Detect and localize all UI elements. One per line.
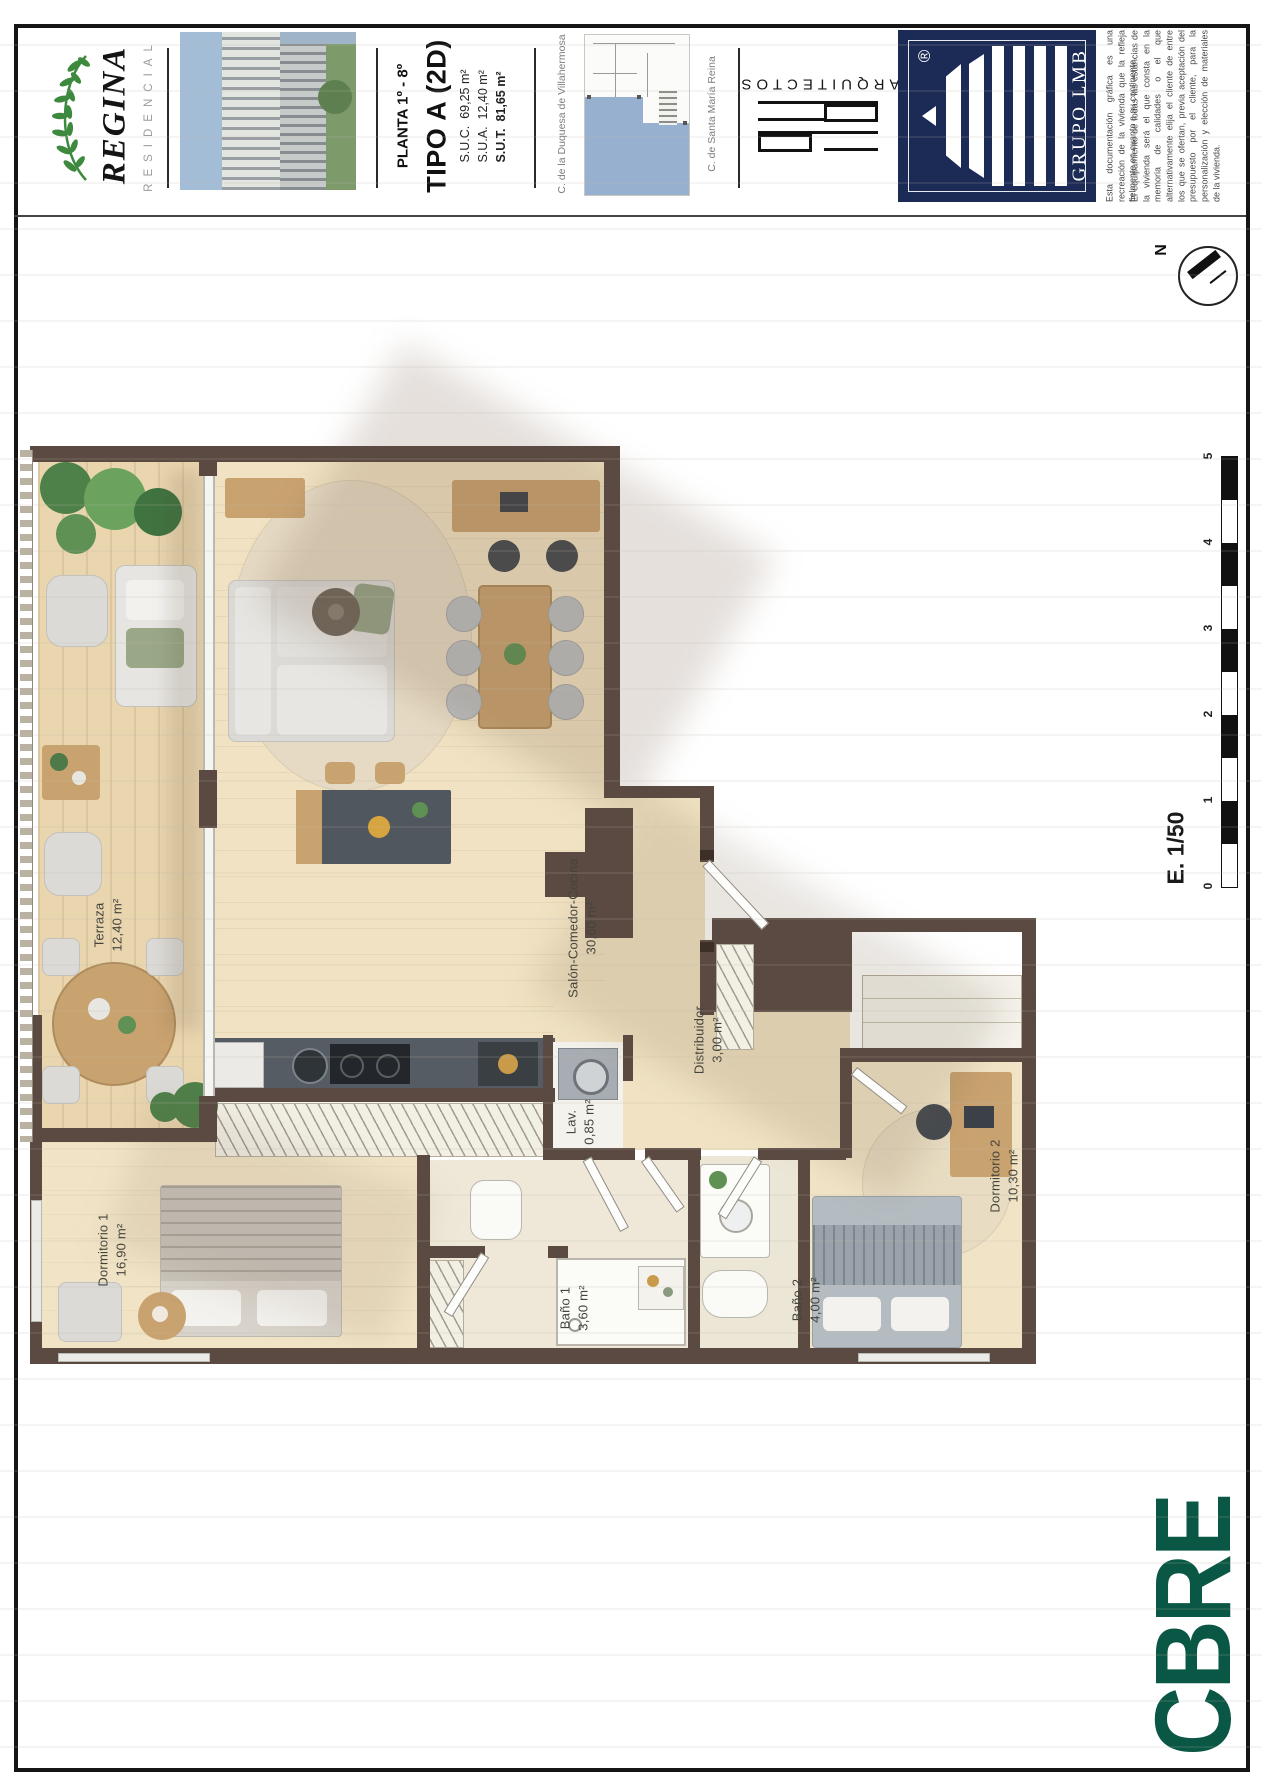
photo-tree-blob [318,80,352,114]
burner [376,1054,400,1078]
island-stool [375,762,405,784]
scale-tick: 3 [1201,625,1215,632]
room-label-distribuidor: Distribuidor 3,00 m² [690,1006,725,1074]
bench-deco [663,1287,673,1297]
room-name: Salón-Comedor-Cocina [564,858,582,998]
sideboard [225,478,305,518]
architects-label: ARQUITECTOS [736,76,899,93]
area-label: S.U.A. [476,126,490,162]
key-plan-column [683,121,687,125]
area-row-sua: S.U.A. 12,40 m² [474,69,492,162]
room-area: 4,00 m² [806,1277,824,1322]
photo-sky-strip [280,32,356,44]
key-plan-stair [659,91,677,125]
room-name: Dormitorio 2 [986,1139,1004,1212]
bedroom2-bed [812,1196,962,1348]
island-stool [325,762,355,784]
wall-top [30,446,620,462]
room-area: 12,40 m² [108,899,126,952]
key-plan-line [593,43,675,44]
disclaimer-paragraph-2: El equipamiento de todas las estancias d… [1129,30,1223,202]
bench-deco [647,1275,659,1287]
fruit-bowl [368,816,390,838]
architects-logo-box [824,104,878,122]
washer-door [573,1059,609,1095]
wall-living-right [604,446,620,798]
room-name: Baño 1 [556,1285,574,1330]
bed-blanket [813,1225,961,1285]
plan-sheet: REGINA RESIDENCIAL PLANTA 1º - 8º TIPO A… [0,0,1262,1785]
bedroom1-side-table [138,1292,186,1340]
terrace-plant [56,514,96,554]
cooktop [330,1044,410,1084]
grupo-name: GRUPO LMB [1069,49,1091,182]
room-area: 30,60 m² [582,858,600,998]
grupo-lmb-logo: ® [898,30,1096,202]
room-label-salon: Salón-Comedor-Cocina 30,60 m² [564,858,599,998]
wall-under-closet [850,1048,1022,1062]
street-label-right: C. de Santa María Reina [706,56,718,172]
header-divider [14,215,1246,217]
bedroom1-armchair [58,1282,122,1342]
room-name: Distribuidor [690,1006,708,1074]
wall-kitchen-back [205,1088,555,1102]
terrace-chair [42,1066,80,1104]
terrace-shadow [168,470,202,1030]
vanity-plant [709,1171,727,1189]
area-row-suc: S.U.C. 69,25 m² [456,69,474,162]
grupo-mark-bar [1013,46,1025,186]
cbre-logo: CBRE [1132,1496,1255,1756]
bed-pillow [823,1297,881,1331]
grupo-mark-stroke [969,54,984,178]
wall-laundry-left [543,1035,553,1157]
grupo-mark-bar [1034,46,1046,186]
room-label-bano2: Baño 2 4,00 m² [788,1277,823,1322]
brand-subtitle: RESIDENCIAL [143,38,155,192]
room-name: Dormitorio 1 [94,1213,112,1286]
grupo-mark-stroke [946,64,961,168]
key-plan-line [615,43,616,97]
burner [340,1054,364,1078]
plate-areas: S.U.C. 69,25 m² S.U.A. 12,40 m² S.U.T. 8… [456,69,510,162]
table-deco [72,771,86,785]
architects-logo-bar [824,148,878,151]
photo-building-1 [222,32,280,190]
wall-terrace-bottom [30,1128,206,1142]
area-value: 81,65 m² [494,72,508,122]
terrace-railing [20,450,33,1142]
room-area: 3,00 m² [708,1006,726,1074]
brand-name: REGINA [97,46,134,185]
sofa-cushion [277,665,387,735]
wall-bedroom2-left [840,1048,852,1158]
door-jamb [700,942,714,952]
street-label-left: C. de la Duquesa de Villahermosa [556,34,568,193]
scale-tick: 5 [1201,453,1215,460]
area-value: 12,40 m² [476,70,490,119]
scale-tick: 1 [1201,797,1215,804]
compass-north-label: N [1153,244,1171,256]
key-plan-column [637,95,641,99]
architects-logo-box [758,134,812,152]
glazing-mullion [199,1096,217,1142]
room-name: Terraza [90,899,108,952]
room-area: 3,60 m² [574,1285,592,1330]
bathroom1-toilet [470,1180,522,1240]
room-area: 16,90 m² [112,1213,130,1286]
scale-label: E. 1/50 [1163,812,1190,885]
room-area: 10,30 m² [1004,1139,1022,1212]
key-plan-highlight-a [585,97,643,195]
plant-pot [50,753,68,771]
key-plan-line [593,73,637,74]
area-value: 69,25 m² [458,69,472,118]
bathroom2-vanity [700,1164,770,1258]
grupo-mark-bar [1055,46,1067,186]
header-separator-4 [738,48,740,188]
window-bedroom1-left [31,1200,42,1322]
terrace-armchair [44,832,102,896]
building-photo [180,32,356,190]
table-plate [88,998,110,1020]
plate-floor: PLANTA 1º - 8º [395,64,412,168]
glazing-mullion [199,446,217,476]
terrace-armchair [46,575,108,647]
scale-bar [1221,456,1238,888]
oven-dish [498,1054,518,1074]
wall-bath1-inner-a [417,1246,485,1258]
terrace-chair [42,938,80,976]
bathroom1-bench [638,1266,684,1310]
room-name: Lav. [562,1099,580,1144]
island-plant [412,802,428,818]
door-jamb [700,850,714,860]
area-row-sut: S.U.T. 81,65 m² [492,69,510,162]
window-bedroom1-bottom [58,1353,210,1362]
desk-laptop [964,1106,994,1128]
wall-bath-divider [688,1156,700,1348]
room-label-lav: Lav. 0,85 m² [562,1099,597,1144]
room-label-terraza: Terraza 12,40 m² [90,899,125,952]
island-wood-side [296,790,322,864]
washing-machine [558,1048,618,1100]
bed-pillow [891,1297,949,1331]
wall-laundry-right [623,1035,633,1081]
key-plan-column [587,95,591,99]
terrace-console-table [42,745,100,800]
photo-sky [180,32,222,190]
kitchen-island [296,790,451,864]
grupo-mark-bar [992,46,1004,186]
fridge [214,1042,264,1088]
window-bedroom2-bottom [858,1353,990,1362]
room-label-dormitorio1: Dormitorio 1 16,90 m² [94,1213,129,1286]
glazing-mullion [199,770,217,828]
table-plant [118,1016,136,1034]
key-plan [584,34,690,196]
laurel-branch-icon [44,52,102,184]
wall-bath1-inner-b [548,1246,568,1258]
plate-type: TIPO A (2D) [422,39,453,193]
header-separator-1 [167,48,169,188]
kitchen-counter [210,1038,555,1090]
bathroom2-toilet [702,1270,768,1318]
photo-building-2 [280,42,326,190]
scale-tick: 2 [1201,711,1215,718]
header-separator-2 [376,48,378,188]
key-plan-highlight-b [643,123,689,195]
kitchen-sink [292,1048,328,1084]
scale-tick: 0 [1201,883,1215,890]
table-deco [152,1306,168,1322]
area-label: S.U.T. [494,129,508,163]
room-label-dormitorio2: Dormitorio 2 10,30 m² [986,1139,1021,1212]
room-area: 0,85 m² [580,1099,598,1144]
wall-outer-right [1022,918,1036,1364]
architects-logo-bar [758,118,824,121]
room-label-bano1: Baño 1 3,60 m² [556,1285,591,1330]
wall-entry-top [604,786,712,798]
header-separator-3 [534,48,536,188]
scale-tick: 4 [1201,539,1215,546]
oven [478,1042,538,1086]
room-name: Baño 2 [788,1277,806,1322]
area-label: S.U.C. [458,126,472,163]
key-plan-line [647,53,648,97]
grupo-registered-mark: ® [915,50,935,63]
